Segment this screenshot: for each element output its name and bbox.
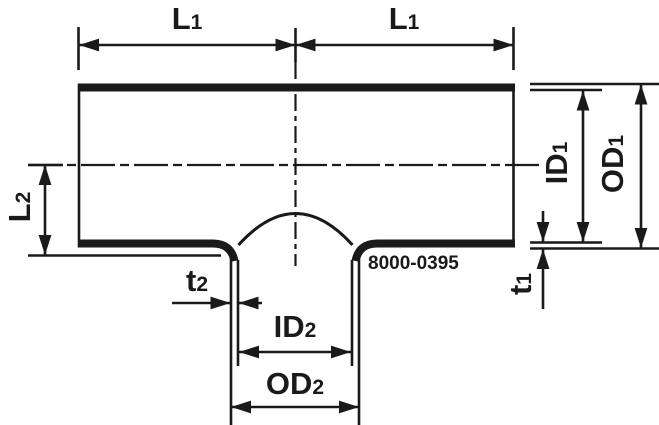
part-number: 8000-0395 [368,253,459,274]
label-od1: OD1 [595,135,630,194]
label-t1: t1 [503,273,538,295]
drawing-canvas: L1 L1 L2 ID1 OD1 t1 t2 ID2 OD2 8000-0395 [0,0,659,425]
label-l1-right: L1 [389,1,420,36]
label-l1-left: L1 [172,1,203,36]
main-tube-bottom-wall-left [79,244,235,262]
tee-fitting-dimension-drawing: L1 L1 L2 ID1 OD1 t1 t2 ID2 OD2 8000-0395 [0,0,659,425]
label-id1: ID1 [539,141,574,184]
label-t2: t2 [186,263,208,298]
label-od2: OD2 [266,366,324,401]
dimension-labels: L1 L1 L2 ID1 OD1 t1 t2 ID2 OD2 8000-0395 [2,1,630,401]
label-l2: L2 [2,192,37,223]
extension-lines [28,27,659,249]
label-id2: ID2 [274,309,317,344]
centerlines [28,62,541,266]
dimension-lines [45,45,641,407]
